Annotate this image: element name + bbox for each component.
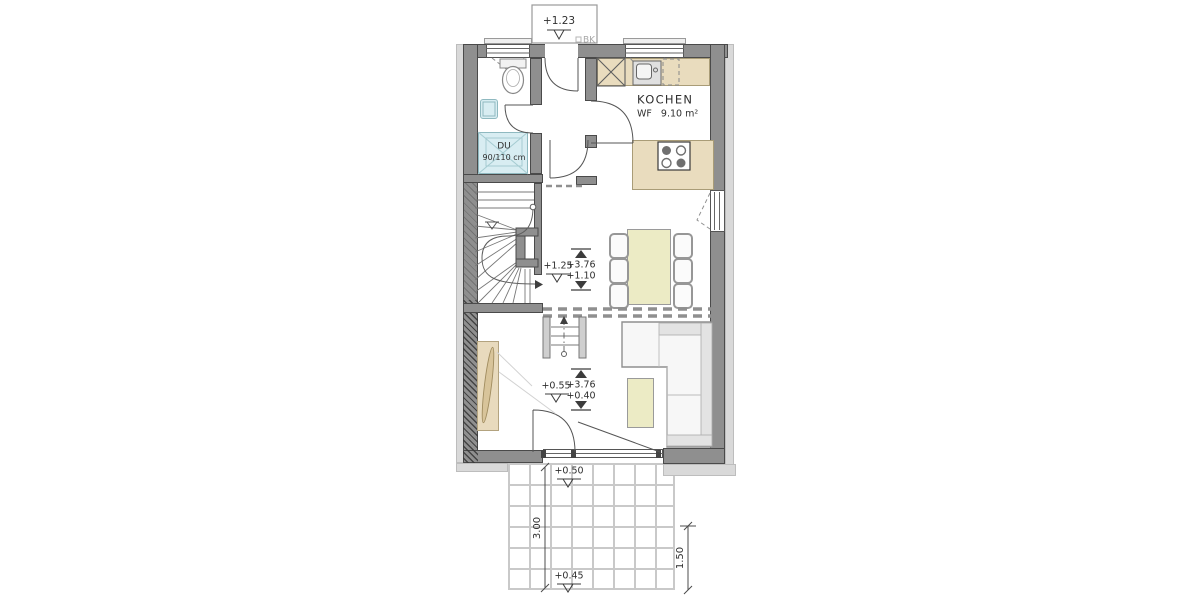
wall-hall-stub	[576, 176, 597, 185]
entrance-opening	[545, 44, 578, 58]
render-strip-bottom-left	[456, 463, 508, 472]
living-ceiling-label: +3.76	[566, 380, 595, 390]
wall-stair-bottom	[463, 303, 543, 313]
dining-chair	[609, 283, 629, 309]
stair-steps	[475, 192, 534, 303]
dining-chair	[673, 233, 693, 259]
shower-type-label: DU	[497, 143, 511, 152]
bk-label: BK	[583, 37, 595, 46]
kitchen-island	[632, 140, 714, 190]
wall-kitchen-stub	[585, 135, 597, 148]
bath-window	[486, 44, 530, 58]
party-wall-hatch	[463, 300, 478, 463]
split-level-steps	[543, 316, 586, 358]
living-floor-label: +0.40	[566, 391, 595, 401]
wall-stair-right	[534, 183, 542, 275]
dining-chair	[609, 233, 629, 259]
floor-plan: +1.23 BK KOCHEN WF 9.10 m² DU 90/110 cm …	[0, 0, 1200, 600]
patio-door-glazing	[543, 449, 663, 458]
terrace-depth-dimension: 3.00	[533, 517, 543, 539]
kitchen-window	[625, 44, 684, 58]
kitchen-area-label: WF 9.10 m²	[637, 109, 698, 119]
washbasin	[480, 99, 498, 119]
kitchen-counter	[597, 58, 710, 86]
stair-mid-level-marker	[485, 222, 499, 229]
terrace-lower-level-label: +0.45	[554, 571, 583, 581]
room-label-kitchen: KOCHEN	[637, 94, 693, 106]
terrace-upper-level-label: +0.50	[554, 466, 583, 476]
wall-right	[710, 44, 725, 463]
canopy-level-label: +1.23	[543, 16, 575, 27]
wall-bottom-right	[663, 448, 725, 464]
dining-chair	[609, 258, 629, 284]
render-strip-bottom-right	[663, 464, 736, 476]
terrace-side-dimension: 1.50	[676, 547, 686, 569]
wall-bath-lower	[530, 133, 542, 174]
dining-window	[710, 190, 725, 232]
dining-chair	[673, 258, 693, 284]
dining-floor-label: +1.10	[566, 271, 595, 281]
stair-wall-hatch	[463, 180, 478, 300]
render-strip-right	[725, 44, 734, 476]
dining-table	[627, 229, 671, 305]
wc-toilet	[500, 59, 526, 94]
shower-size-label: 90/110 cm	[483, 154, 526, 162]
wall-kitchen-pier	[585, 58, 597, 101]
wall-stair-top	[463, 174, 543, 183]
wall-bath-upper	[530, 58, 542, 105]
dining-ceiling-label: +3.76	[566, 260, 595, 270]
sideboard	[477, 341, 499, 431]
dining-chair	[673, 283, 693, 309]
coffee-table	[627, 378, 654, 428]
